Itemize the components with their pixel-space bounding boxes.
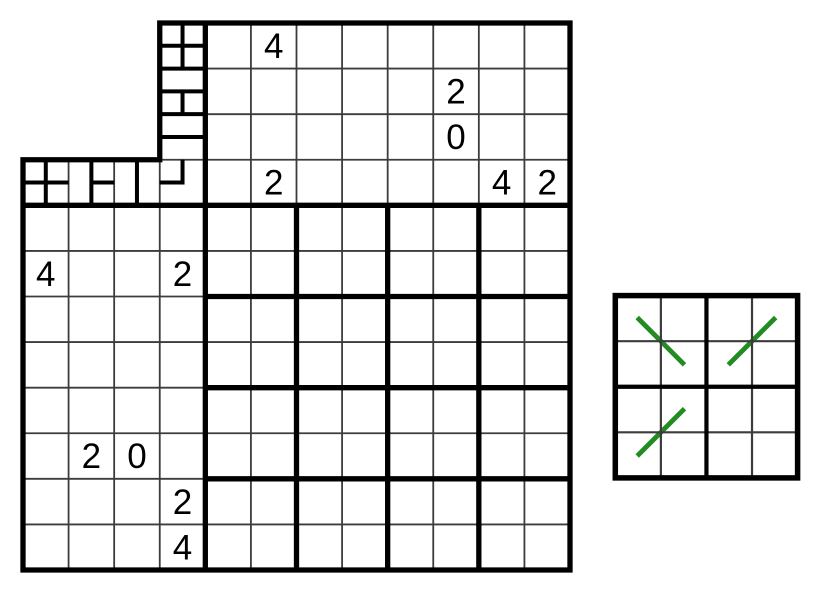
svg-text:4: 4 [173,528,192,567]
svg-text:2: 2 [264,164,283,203]
svg-text:0: 0 [127,437,146,476]
svg-text:2: 2 [173,483,192,522]
svg-text:2: 2 [537,164,556,203]
svg-text:2: 2 [173,255,192,294]
svg-text:4: 4 [264,27,283,66]
svg-text:4: 4 [36,255,55,294]
svg-text:2: 2 [82,437,101,476]
svg-text:4: 4 [492,164,511,203]
svg-text:0: 0 [446,118,465,157]
svg-text:2: 2 [446,73,465,112]
